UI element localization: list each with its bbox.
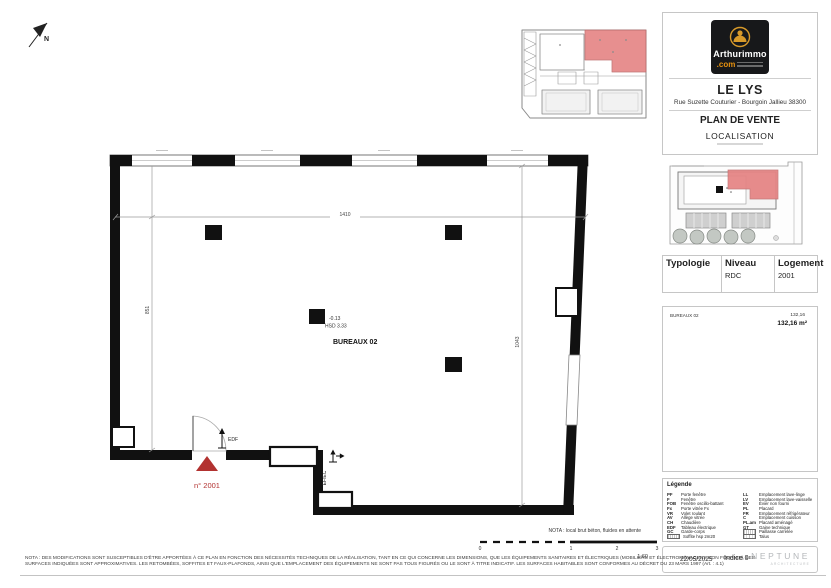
wall-box-step (318, 492, 352, 508)
localisation-title: LOCALISATION (663, 131, 817, 141)
nota-line-2: SURFACES INDIQUÉES SONT APPROXIMATIVES. … (25, 562, 755, 568)
project-title: LE LYS (663, 83, 817, 97)
legend-right-column: LLEmplacement lave-linge LVEmplacement l… (743, 492, 817, 539)
surface-area: 132,16 (790, 313, 805, 318)
wall-box-left (112, 427, 134, 447)
column-marker (445, 357, 462, 372)
lot-value: 2001 (778, 271, 814, 280)
hatch-swatch (743, 534, 756, 540)
legend-box: Légende PFPorte fenêtre FFenêtre FOBFenê… (662, 478, 818, 542)
column-marker (205, 225, 222, 240)
column-marker (445, 225, 462, 240)
entrance-door (192, 416, 226, 461)
edf-label: EDF (228, 437, 238, 443)
bottom-nota: NOTA : DES MODIFICATIONS SONT SUSCEPTIBL… (25, 556, 755, 567)
agency-logo-brand: Arthurimmo (713, 49, 767, 59)
scale-tick-2: 2 (616, 546, 619, 552)
surface-box: BUREAUX 02 132,16 132,16 m² (662, 306, 818, 472)
wall-box-right (556, 288, 578, 316)
legend-left-column: PFPorte fenêtre FFenêtre FOBFenêtre osci… (667, 492, 741, 539)
lot-header: Logement (778, 258, 814, 269)
level-header: Niveau (725, 258, 771, 269)
plan-sheet: N (0, 0, 831, 588)
project-address: Rue Suzette Couturier - Bourgoin Jallieu… (663, 99, 817, 106)
surface-total: 132,16 m² (777, 320, 807, 327)
north-label: N (44, 36, 49, 43)
nota-line-1: NOTA : DES MODIFICATIONS SONT SUSCEPTIBL… (25, 556, 755, 562)
divider (669, 78, 811, 79)
columns (205, 225, 462, 372)
wall-box-bottom (270, 447, 317, 466)
localisation-caption (717, 143, 763, 145)
efec-symbol-icon (329, 450, 345, 463)
efec-label: EF/EC (322, 470, 328, 485)
title-block-header: Arthurimmo .com LE LYS Rue Suzette Coutu… (662, 12, 818, 155)
plan-nota: NOTA : local brut béton, fluides en atte… (549, 528, 642, 534)
glazed-strip (566, 355, 580, 425)
scale-tick-3: 3 (656, 546, 659, 552)
bottom-rule (20, 575, 826, 576)
agency-logo-tld: .com (717, 60, 736, 69)
key-plan (522, 30, 646, 118)
localisation-map-box (662, 158, 818, 250)
typology-header: Typologie (666, 258, 718, 269)
document-type: PLAN DE VENTE (663, 115, 817, 126)
agency-logo: Arthurimmo .com (711, 20, 769, 74)
legend-item: Talus (743, 534, 817, 539)
hatch-swatch (667, 534, 680, 540)
north-arrow-icon: N (29, 23, 49, 47)
architect-subtitle: ARCHITECTURE (751, 562, 810, 566)
level-value: RDC (725, 271, 771, 280)
scale-tick-1: 1 (570, 546, 573, 552)
lot-number: n° 2001 (194, 481, 220, 490)
level-note: -0.13 (329, 316, 341, 322)
agency-logo-icon (728, 26, 752, 48)
architect-name: NEPTUNE (751, 551, 810, 561)
legend-title: Légende (667, 482, 692, 488)
room-label: BUREAUX 02 (333, 339, 377, 346)
legend-item: Soffite hsp 2m20 (667, 534, 741, 539)
dim-top: 1410 (339, 212, 350, 218)
dim-left: 851 (145, 306, 151, 315)
column-marker (309, 309, 325, 324)
architect-logo: NEPTUNE ARCHITECTURE (751, 551, 810, 566)
agency-logo-tagline (737, 62, 763, 67)
typology-table: Typologie Niveau RDC Logement 2001 (662, 255, 818, 293)
surface-room: BUREAUX 02 (670, 313, 699, 318)
divider (669, 110, 811, 111)
dim-right: 1043 (515, 336, 521, 347)
plan-walls (110, 151, 588, 516)
hsd-note: HSD 3.33 (325, 324, 347, 330)
scale-tick-0: 0 (479, 546, 482, 552)
localisation-map (664, 158, 816, 250)
